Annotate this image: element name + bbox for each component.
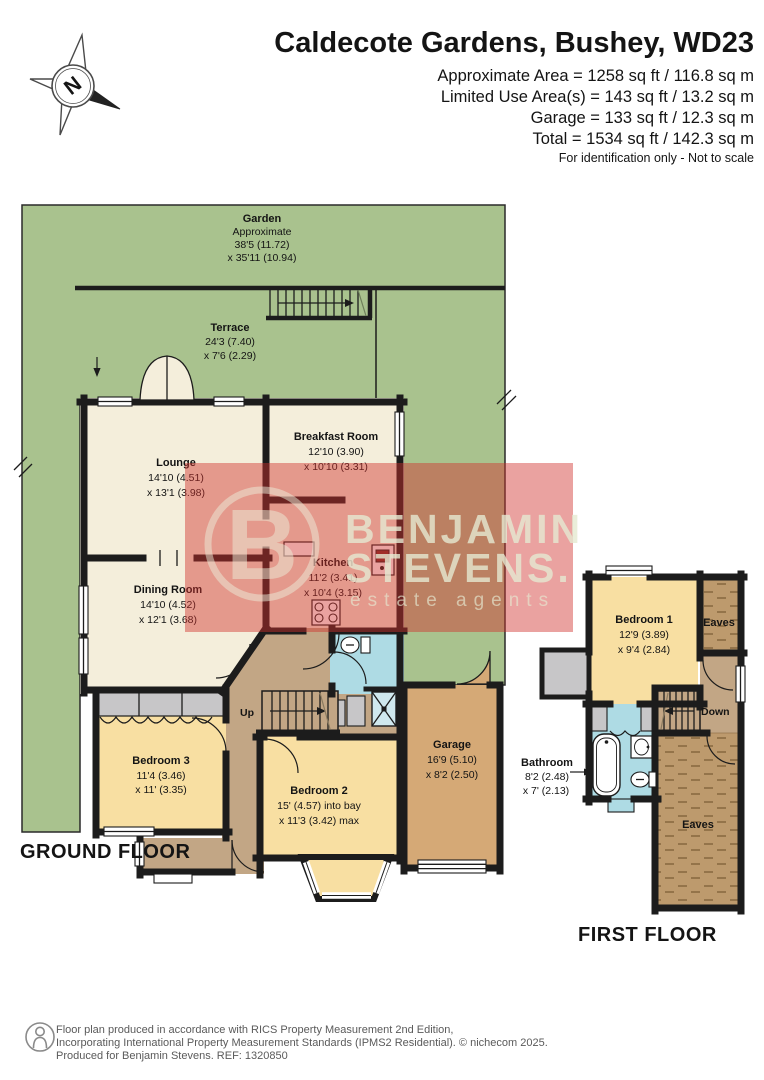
ground-floor-title: GROUND FLOOR [20, 841, 190, 863]
bedroom3-closet [96, 692, 226, 716]
compass-icon: N [30, 35, 120, 135]
first-floor-title: FIRST FLOOR [578, 924, 717, 946]
terrace-label-block: Terrace 24'3 (7.40) x 7'6 (2.29) [204, 322, 256, 362]
terrace-dim1: 24'3 (7.40) [205, 336, 255, 348]
eaves-bottom-label: Eaves [682, 819, 714, 831]
garden-label: Garden [243, 213, 282, 225]
garage-dim1: 16'9 (5.10) [427, 754, 477, 766]
bedroom3-dim2: x 11' (3.35) [135, 784, 186, 796]
disclaimer-text: For identification only - Not to scale [559, 151, 754, 165]
bedroom1-dim1: 12'9 (3.89) [619, 629, 669, 641]
bathroom-label: Bathroom [521, 757, 573, 769]
area-line-total: Total = 1534 sq ft / 142.3 sq m [532, 130, 754, 148]
terrace-label: Terrace [211, 322, 250, 334]
area-line-garage: Garage = 133 sq ft / 12.3 sq m [531, 109, 754, 127]
garden-line3: x 35'11 (10.94) [228, 252, 297, 264]
watermark-logo-letter: B [226, 489, 298, 601]
garage-dim2: x 8'2 (2.50) [426, 769, 478, 781]
ff-closet-left [591, 706, 607, 731]
bedroom2-label: Bedroom 2 [290, 785, 347, 797]
garden-line2: 38'5 (11.72) [235, 239, 290, 251]
landing-area [700, 655, 739, 733]
bathroom-dim1: 8'2 (2.48) [525, 771, 569, 783]
garden-line1: Approximate [233, 226, 292, 238]
footer: Floor plan produced in accordance with R… [26, 1023, 548, 1062]
eaves-top-label: Eaves [703, 617, 735, 629]
nichecom-person-icon [26, 1023, 54, 1051]
footer-line1: Floor plan produced in accordance with R… [56, 1024, 453, 1036]
garage-label: Garage [433, 739, 471, 751]
garage-door [418, 860, 486, 873]
stairs-up-label: Up [240, 707, 254, 719]
bathroom-toilet-icon [631, 772, 656, 787]
bedroom1-label: Bedroom 1 [615, 614, 672, 626]
area-line-limited-use: Limited Use Area(s) = 143 sq ft / 13.2 s… [441, 88, 754, 106]
hall-closet-2 [347, 696, 365, 726]
terrace-dim2: x 7'6 (2.29) [204, 350, 256, 362]
header: Caldecote Gardens, Bushey, WD23 Approxim… [274, 27, 754, 165]
watermark-line3: estate agents [350, 590, 555, 611]
bedroom2-room [258, 737, 400, 858]
shower-icon [372, 692, 396, 726]
bedroom3-dim1: 11'4 (3.46) [136, 770, 185, 782]
ff-entry-closet [542, 650, 589, 697]
breakfast-room-dim1: 12'10 (3.90) [308, 446, 364, 458]
stairs-up [256, 691, 340, 733]
bathroom-label-block: Bathroom 8'2 (2.48) x 7' (2.13) [521, 757, 573, 797]
floorplan-svg: Caldecote Gardens, Bushey, WD23 Approxim… [0, 0, 764, 1080]
breakfast-room-label: Breakfast Room [294, 431, 379, 443]
floorplan-page: Caldecote Gardens, Bushey, WD23 Approxim… [0, 0, 764, 1080]
bedroom2-dim2: x 11'3 (3.42) max [279, 815, 360, 827]
bathroom-sink-icon [631, 736, 652, 758]
footer-line3: Produced for Benjamin Stevens. REF: 1320… [56, 1050, 288, 1062]
stairs-down [657, 691, 700, 731]
stairs-down-label: Down [701, 706, 730, 718]
watermark-line2: STEVENS. [345, 545, 572, 591]
bedroom2-dim1: 15' (4.57) into bay [277, 800, 361, 812]
bedroom3-label-block: Bedroom 3 11'4 (3.46) x 11' (3.35) [132, 755, 189, 796]
wc-toilet-icon [341, 637, 370, 653]
watermark: B BENJAMIN STEVENS. estate agents [185, 463, 583, 632]
bathroom-tab [608, 799, 634, 812]
footer-line2: Incorporating International Property Mea… [56, 1037, 548, 1049]
bedroom1-dim2: x 9'4 (2.84) [618, 644, 670, 656]
garage-label-block: Garage 16'9 (5.10) x 8'2 (2.50) [426, 739, 478, 781]
bedroom1-label-block: Bedroom 1 12'9 (3.89) x 9'4 (2.84) [615, 614, 672, 656]
bathtub-icon [593, 734, 620, 796]
area-line-approximate: Approximate Area = 1258 sq ft / 116.8 sq… [437, 67, 754, 85]
bathroom-dim2: x 7' (2.13) [523, 785, 569, 797]
page-title: Caldecote Gardens, Bushey, WD23 [274, 27, 754, 59]
bedroom3-label: Bedroom 3 [132, 755, 189, 767]
